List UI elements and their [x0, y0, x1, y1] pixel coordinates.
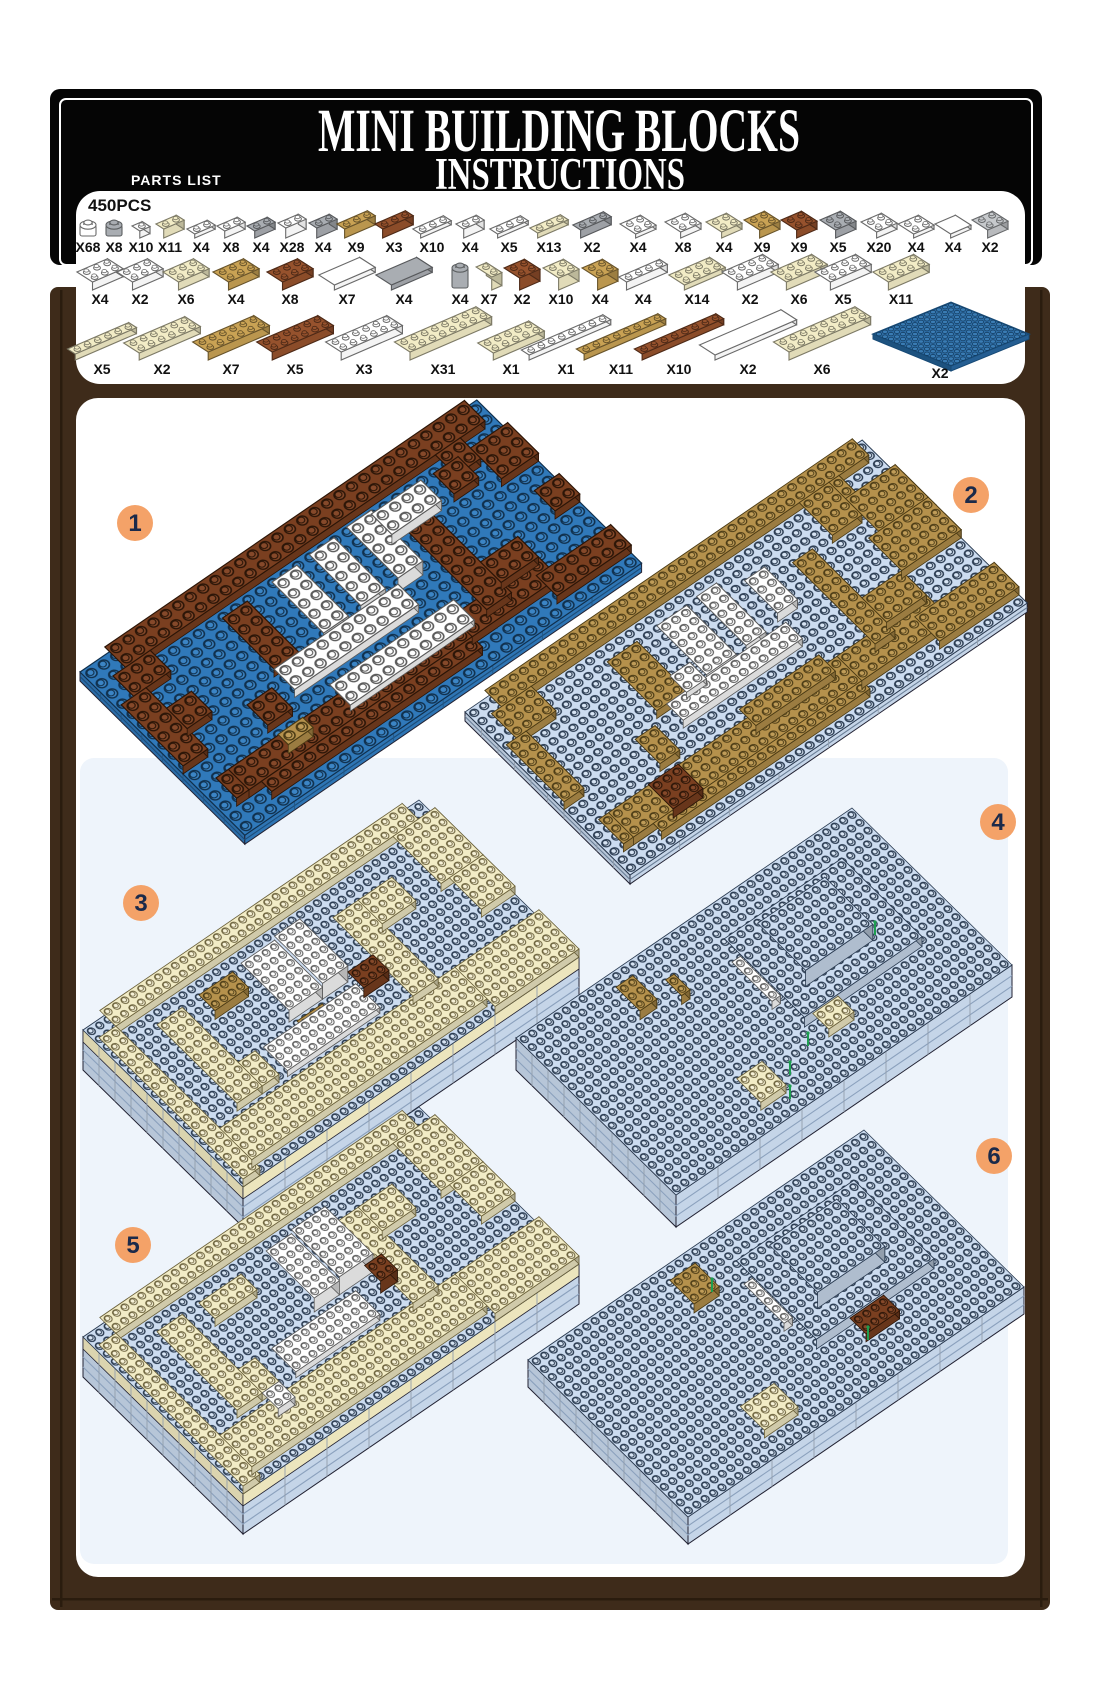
svg-text:X4: X4 — [314, 239, 331, 255]
svg-text:X4: X4 — [591, 291, 608, 307]
svg-text:X4: X4 — [715, 239, 732, 255]
svg-text:X14: X14 — [685, 291, 710, 307]
svg-text:X4: X4 — [192, 239, 209, 255]
svg-text:X4: X4 — [91, 291, 108, 307]
svg-text:X2: X2 — [513, 291, 530, 307]
svg-text:X31: X31 — [431, 361, 456, 377]
svg-text:X1: X1 — [502, 361, 519, 377]
svg-text:5: 5 — [126, 1232, 139, 1259]
svg-text:X3: X3 — [385, 239, 402, 255]
svg-text:X9: X9 — [753, 239, 770, 255]
svg-text:X4: X4 — [907, 239, 924, 255]
svg-text:X11: X11 — [158, 239, 182, 255]
svg-text:X4: X4 — [451, 291, 468, 307]
svg-text:2: 2 — [964, 482, 977, 509]
svg-text:X28: X28 — [280, 239, 305, 255]
svg-text:X11: X11 — [609, 361, 633, 377]
svg-text:X11: X11 — [889, 291, 913, 307]
svg-text:X4: X4 — [252, 239, 269, 255]
svg-text:X7: X7 — [338, 291, 355, 307]
svg-text:X10: X10 — [420, 239, 445, 255]
svg-text:X7: X7 — [480, 291, 497, 307]
svg-text:X2: X2 — [153, 361, 170, 377]
svg-text:X68: X68 — [76, 239, 101, 255]
svg-text:X2: X2 — [741, 291, 758, 307]
svg-text:X10: X10 — [667, 361, 692, 377]
svg-text:X8: X8 — [674, 239, 691, 255]
svg-text:X5: X5 — [93, 361, 110, 377]
svg-text:X7: X7 — [222, 361, 239, 377]
svg-text:X8: X8 — [281, 291, 298, 307]
svg-text:X3: X3 — [355, 361, 372, 377]
svg-text:X4: X4 — [461, 239, 478, 255]
svg-text:X8: X8 — [222, 239, 239, 255]
svg-text:X4: X4 — [227, 291, 244, 307]
svg-text:X5: X5 — [834, 291, 851, 307]
svg-text:X4: X4 — [629, 239, 646, 255]
svg-text:X6: X6 — [177, 291, 194, 307]
svg-text:X5: X5 — [829, 239, 846, 255]
svg-text:X9: X9 — [790, 239, 807, 255]
svg-text:X8: X8 — [105, 239, 122, 255]
svg-text:X4: X4 — [634, 291, 651, 307]
svg-text:X10: X10 — [549, 291, 574, 307]
svg-text:1: 1 — [128, 510, 141, 537]
svg-text:X5: X5 — [286, 361, 303, 377]
svg-text:X9: X9 — [347, 239, 364, 255]
svg-text:PARTS LIST: PARTS LIST — [131, 172, 222, 188]
svg-text:3: 3 — [134, 890, 147, 917]
svg-text:4: 4 — [991, 809, 1005, 836]
svg-text:X6: X6 — [813, 361, 830, 377]
svg-text:450PCS: 450PCS — [88, 196, 151, 215]
svg-text:X20: X20 — [867, 239, 892, 255]
svg-text:X2: X2 — [583, 239, 600, 255]
svg-text:X2: X2 — [739, 361, 756, 377]
svg-text:X13: X13 — [537, 239, 562, 255]
svg-text:X5: X5 — [500, 239, 517, 255]
svg-text:X2: X2 — [931, 365, 948, 381]
svg-text:X2: X2 — [981, 239, 998, 255]
svg-text:X4: X4 — [395, 291, 412, 307]
svg-text:X10: X10 — [129, 239, 154, 255]
svg-text:X2: X2 — [131, 291, 148, 307]
svg-text:X4: X4 — [944, 239, 961, 255]
svg-text:X6: X6 — [790, 291, 807, 307]
svg-text:6: 6 — [987, 1143, 1000, 1170]
svg-text:X1: X1 — [557, 361, 574, 377]
